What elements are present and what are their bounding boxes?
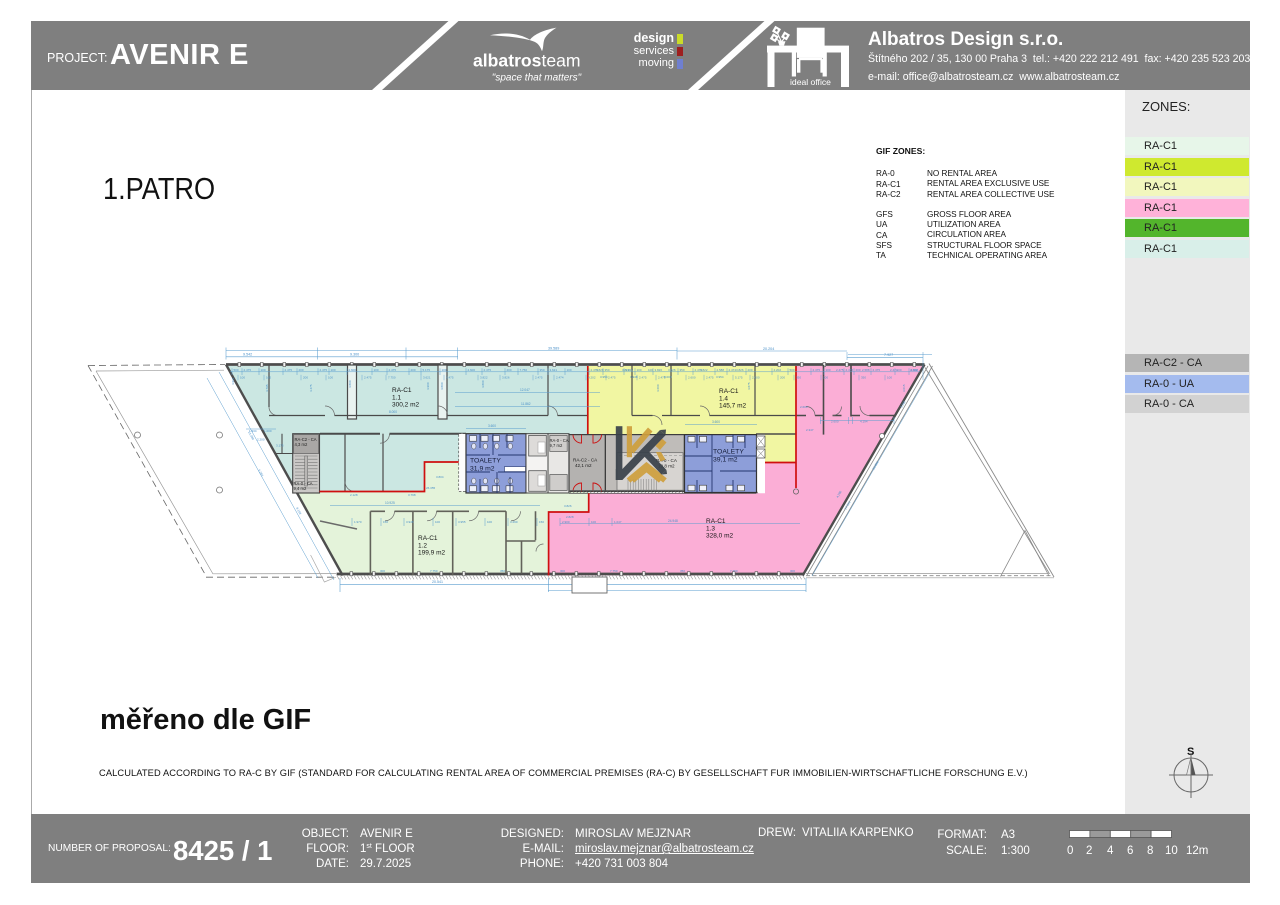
svg-text:100: 100 (435, 520, 440, 524)
svg-text:1.3: 1.3 (706, 525, 715, 532)
svg-text:300: 300 (790, 569, 795, 573)
svg-text:4.202: 4.202 (588, 376, 596, 380)
svg-text:RA-C2 - CA: RA-C2 - CA (573, 458, 598, 463)
svg-text:3.015: 3.015 (902, 384, 906, 392)
svg-text:3.175: 3.175 (276, 444, 284, 448)
svg-text:2.347: 2.347 (806, 428, 814, 432)
svg-text:350: 350 (500, 569, 505, 573)
svg-text:3.945: 3.945 (406, 520, 414, 524)
svg-text:100: 100 (266, 376, 271, 380)
svg-text:2.600: 2.600 (800, 405, 808, 409)
svg-text:2.600: 2.600 (349, 368, 357, 372)
svg-text:4.800: 4.800 (440, 382, 444, 390)
svg-text:4.875: 4.875 (747, 382, 751, 390)
svg-text:3.826: 3.826 (655, 368, 663, 372)
svg-text:3.822: 3.822 (622, 368, 630, 372)
svg-text:20.204: 20.204 (763, 347, 774, 351)
svg-text:3.600: 3.600 (488, 424, 496, 428)
svg-text:350: 350 (680, 569, 685, 573)
svg-text:3.826: 3.826 (736, 368, 744, 372)
svg-text:100: 100 (374, 368, 379, 372)
svg-text:100: 100 (887, 376, 892, 380)
svg-text:3.600: 3.600 (712, 420, 720, 424)
svg-text:2.475: 2.475 (608, 376, 616, 380)
svg-text:3.822: 3.822 (700, 368, 708, 372)
svg-text:2.475: 2.475 (285, 368, 293, 372)
svg-text:350: 350 (605, 368, 610, 372)
svg-text:20.541: 20.541 (432, 580, 443, 584)
svg-text:9.300: 9.300 (350, 353, 359, 357)
svg-text:7.750: 7.750 (388, 376, 396, 380)
svg-text:3.804: 3.804 (436, 475, 444, 479)
svg-text:200: 200 (303, 376, 308, 380)
svg-text:350: 350 (861, 376, 866, 380)
svg-text:9,7 m2: 9,7 m2 (550, 443, 563, 448)
svg-text:3.955: 3.955 (458, 520, 466, 524)
svg-text:8.000: 8.000 (664, 375, 672, 379)
svg-text:9,4 m2: 9,4 m2 (294, 486, 307, 491)
svg-text:3.954: 3.954 (716, 375, 724, 379)
svg-text:RA-C1: RA-C1 (392, 387, 412, 394)
svg-text:2.475: 2.475 (364, 376, 372, 380)
svg-text:4.600: 4.600 (656, 384, 660, 392)
svg-text:7.750: 7.750 (520, 368, 528, 372)
svg-text:3.290: 3.290 (510, 520, 518, 524)
svg-text:1.1: 1.1 (392, 394, 401, 401)
svg-text:5.283: 5.283 (257, 469, 264, 478)
svg-text:4,3 m2: 4,3 m2 (295, 442, 308, 447)
svg-text:4.800: 4.800 (481, 380, 485, 388)
svg-text:4.194: 4.194 (860, 420, 868, 424)
svg-text:2.475: 2.475 (846, 368, 854, 372)
svg-text:4.911: 4.911 (231, 377, 235, 385)
svg-text:3.826: 3.826 (668, 368, 676, 372)
svg-text:145,7 m2: 145,7 m2 (719, 403, 746, 410)
svg-text:350: 350 (796, 376, 801, 380)
svg-text:RA-C1: RA-C1 (418, 535, 438, 542)
svg-text:4.800: 4.800 (348, 380, 352, 388)
svg-text:2.475: 2.475 (706, 376, 714, 380)
svg-text:200: 200 (780, 376, 785, 380)
svg-text:3.621: 3.621 (550, 368, 558, 372)
svg-text:8.158: 8.158 (295, 507, 302, 516)
svg-text:1.2: 1.2 (418, 542, 427, 549)
svg-text:100: 100 (261, 368, 266, 372)
svg-text:2.474: 2.474 (556, 376, 564, 380)
svg-text:26.355: 26.355 (426, 486, 436, 490)
svg-text:100: 100 (826, 368, 831, 372)
svg-text:2.475: 2.475 (244, 368, 252, 372)
svg-text:2.600: 2.600 (831, 420, 839, 424)
svg-text:4.202: 4.202 (910, 368, 918, 372)
svg-text:100: 100 (823, 376, 828, 380)
svg-text:2.475: 2.475 (639, 376, 647, 380)
svg-text:2.200: 2.200 (257, 438, 265, 442)
svg-text:1.934: 1.934 (249, 429, 257, 433)
svg-text:2.588: 2.588 (862, 368, 870, 372)
svg-text:350: 350 (680, 368, 685, 372)
svg-text:2.474: 2.474 (890, 368, 898, 372)
svg-text:200: 200 (748, 368, 753, 372)
svg-text:4.475: 4.475 (309, 384, 313, 392)
svg-text:3.826: 3.826 (564, 504, 572, 508)
svg-text:2.128: 2.128 (350, 493, 358, 497)
svg-text:2.588: 2.588 (717, 368, 725, 372)
svg-text:2.475: 2.475 (873, 368, 881, 372)
svg-text:2.475: 2.475 (813, 368, 821, 372)
svg-text:9.542: 9.542 (243, 353, 252, 357)
svg-text:500: 500 (234, 368, 239, 372)
svg-text:200: 200 (856, 368, 861, 372)
svg-text:100: 100 (487, 520, 492, 524)
svg-text:3.798: 3.798 (408, 493, 416, 497)
svg-text:3.954: 3.954 (600, 375, 608, 379)
svg-text:1.970: 1.970 (354, 520, 362, 524)
svg-text:100: 100 (442, 368, 447, 372)
svg-text:7.750: 7.750 (610, 569, 618, 573)
svg-text:11.862: 11.862 (521, 402, 531, 406)
svg-text:2.600: 2.600 (752, 376, 760, 380)
svg-text:39,1 m2: 39,1 m2 (713, 457, 738, 464)
svg-text:42,1 m2: 42,1 m2 (575, 463, 592, 468)
svg-text:5.175: 5.175 (423, 368, 431, 372)
svg-text:2.475: 2.475 (535, 376, 543, 380)
svg-text:24.948: 24.948 (668, 519, 678, 523)
svg-text:3.948: 3.948 (630, 375, 638, 379)
svg-text:12.047: 12.047 (520, 388, 530, 392)
svg-text:7.750: 7.750 (430, 569, 438, 573)
svg-text:4.795: 4.795 (265, 384, 269, 392)
svg-text:199,9 m2: 199,9 m2 (418, 550, 445, 557)
svg-text:3.822: 3.822 (480, 376, 488, 380)
svg-text:5.175: 5.175 (735, 376, 743, 380)
svg-text:200: 200 (299, 368, 304, 372)
svg-text:2.475: 2.475 (446, 376, 454, 380)
svg-text:4.202: 4.202 (774, 368, 782, 372)
svg-text:TOALETY: TOALETY (470, 458, 501, 465)
svg-text:TOALETY: TOALETY (713, 449, 744, 456)
svg-text:2.475: 2.475 (320, 368, 328, 372)
svg-text:350: 350 (540, 368, 545, 372)
svg-text:300: 300 (380, 569, 385, 573)
svg-text:200: 200 (507, 368, 512, 372)
svg-text:8.000: 8.000 (389, 410, 397, 414)
svg-text:100: 100 (648, 368, 653, 372)
svg-text:100: 100 (331, 368, 336, 372)
svg-text:3.829: 3.829 (596, 368, 604, 372)
svg-text:2.475: 2.475 (389, 368, 397, 372)
svg-text:39.589: 39.589 (548, 346, 559, 350)
svg-text:200: 200 (411, 368, 416, 372)
svg-text:500: 500 (790, 368, 795, 372)
svg-text:300,2 m2: 300,2 m2 (392, 402, 419, 409)
svg-text:3.826: 3.826 (502, 376, 510, 380)
svg-text:31,9 m2: 31,9 m2 (470, 466, 495, 473)
svg-text:2.600: 2.600 (468, 368, 476, 372)
svg-text:4.900: 4.900 (426, 382, 430, 390)
svg-text:100: 100 (240, 376, 245, 380)
svg-text:2.475: 2.475 (836, 368, 844, 372)
svg-text:328,0 m2: 328,0 m2 (706, 533, 733, 540)
svg-text:7.750: 7.750 (730, 569, 738, 573)
svg-text:1.000: 1.000 (264, 429, 272, 433)
svg-text:2.600: 2.600 (688, 376, 696, 380)
svg-text:300: 300 (560, 569, 565, 573)
svg-text:150: 150 (539, 520, 544, 524)
svg-text:2.828: 2.828 (566, 515, 574, 519)
svg-text:100: 100 (637, 368, 642, 372)
svg-text:10.925: 10.925 (385, 501, 395, 505)
svg-text:100: 100 (328, 376, 333, 380)
svg-text:1.4: 1.4 (719, 395, 728, 402)
svg-text:2.475: 2.475 (484, 368, 492, 372)
svg-text:3.621: 3.621 (423, 376, 431, 380)
svg-text:100: 100 (567, 368, 572, 372)
svg-text:RA-C1: RA-C1 (706, 518, 726, 525)
svg-text:150: 150 (383, 520, 388, 524)
svg-text:RA-C1: RA-C1 (719, 388, 739, 395)
